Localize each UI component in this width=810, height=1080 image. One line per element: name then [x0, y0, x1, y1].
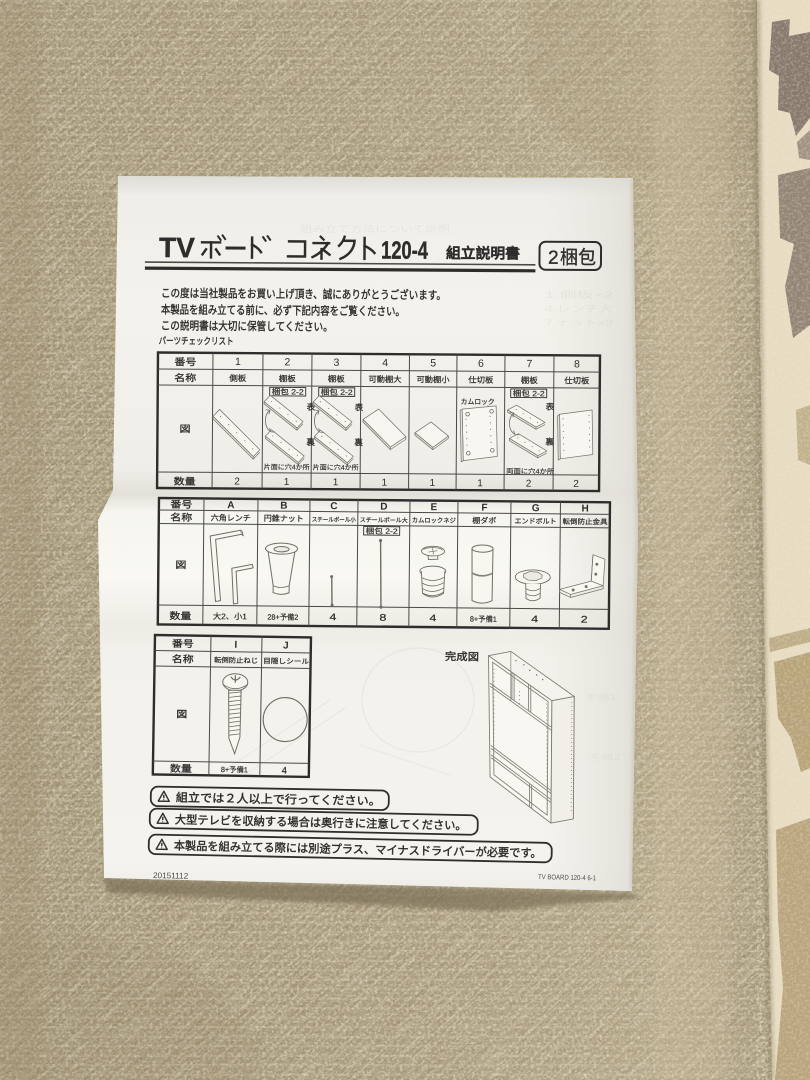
svg-text:棚板: 棚板 — [328, 374, 345, 384]
svg-text:5: 5 — [430, 357, 436, 369]
svg-text:4: 4 — [382, 357, 388, 369]
svg-text:1: 1 — [382, 478, 388, 489]
svg-text:1: 1 — [333, 477, 339, 488]
svg-text:C: C — [330, 501, 337, 512]
svg-text:棚板: 棚板 — [521, 375, 538, 385]
svg-text:梱包 2-2: 梱包 2-2 — [366, 525, 398, 535]
svg-text:棚板: 棚板 — [279, 373, 296, 383]
svg-text:パーツチェックリスト: パーツチェックリスト — [159, 336, 234, 348]
svg-text:番号: 番号 — [170, 499, 192, 511]
svg-text:I: I — [234, 640, 237, 651]
svg-text:図: 図 — [175, 560, 186, 571]
svg-text:2: 2 — [234, 477, 240, 488]
svg-text:G: G — [532, 503, 540, 514]
svg-text:6: 6 — [478, 358, 484, 370]
svg-text:2: 2 — [581, 615, 588, 626]
svg-text:片面に穴4か所: 片面に穴4か所 — [264, 462, 310, 471]
svg-text:1.側板×2: 1.側板×2 — [545, 289, 613, 300]
svg-text:B: B — [280, 501, 287, 512]
svg-text:4: 4 — [531, 614, 538, 625]
svg-text:転倒防止金具: 転倒防止金具 — [563, 517, 608, 526]
svg-text:8+予備1: 8+予備1 — [470, 613, 497, 623]
svg-text:数量: 数量 — [169, 610, 192, 622]
svg-text:片面に穴4か所: 片面に穴4か所 — [313, 463, 359, 472]
svg-text:数量: 数量 — [170, 763, 193, 775]
svg-text:4: 4 — [429, 613, 436, 624]
svg-text:7: 7 — [526, 358, 532, 370]
svg-text:1: 1 — [430, 478, 436, 489]
svg-text:D: D — [380, 502, 387, 513]
svg-text:120-4: 120-4 — [381, 237, 428, 265]
svg-text:8: 8 — [574, 358, 580, 370]
svg-text:仕切板: 仕切板 — [468, 375, 493, 385]
svg-text:可動棚小: 可動棚小 — [417, 374, 450, 384]
svg-text:2: 2 — [548, 248, 559, 269]
svg-text:2: 2 — [526, 479, 532, 490]
svg-text:1: 1 — [235, 356, 241, 368]
svg-text:名称: 名称 — [170, 512, 193, 524]
svg-text:図: 図 — [176, 709, 187, 720]
svg-text:J: J — [283, 641, 289, 652]
svg-text:名称: 名称 — [174, 372, 197, 384]
svg-text:8: 8 — [379, 613, 386, 624]
svg-text:4.レンチ大: 4.レンチ大 — [545, 303, 613, 314]
svg-text:TV: TV — [159, 232, 195, 263]
svg-text:28+予備2: 28+予備2 — [267, 612, 298, 622]
svg-text:3: 3 — [333, 357, 339, 369]
svg-text:4: 4 — [282, 766, 287, 777]
svg-text:手順2: 手順2 — [590, 752, 621, 762]
svg-text:表: 表 — [546, 402, 555, 412]
svg-text:側板: 側板 — [229, 373, 246, 383]
svg-text:2: 2 — [284, 356, 290, 368]
svg-text:六角レンチ: 六角レンチ — [211, 512, 251, 522]
svg-text:図: 図 — [179, 424, 190, 435]
svg-text:番号: 番号 — [172, 638, 194, 650]
svg-text:E: E — [431, 502, 438, 513]
svg-text:1: 1 — [477, 478, 483, 489]
svg-text:エンドボルト: エンドボルト — [515, 517, 557, 525]
svg-text:20151112: 20151112 — [153, 871, 189, 881]
svg-text:梱包 2-2: 梱包 2-2 — [272, 386, 304, 396]
svg-text:8+予備1: 8+予備1 — [221, 764, 248, 774]
svg-text:F: F — [481, 503, 487, 514]
svg-text:表: 表 — [355, 402, 364, 412]
svg-text:数量: 数量 — [174, 476, 197, 488]
svg-text:手順1: 手順1 — [586, 692, 617, 702]
svg-text:梱包: 梱包 — [560, 247, 596, 269]
svg-text:2: 2 — [573, 479, 579, 490]
svg-text:両面に穴4か所: 両面に穴4か所 — [506, 466, 554, 475]
svg-text:仕切板: 仕切板 — [564, 375, 589, 385]
svg-text:裏: 裏 — [545, 437, 554, 447]
svg-text:円錐ナット: 円錐ナット — [264, 513, 304, 523]
svg-text:この説明書は大切に保管してください。: この説明書は大切に保管してください。 — [161, 318, 333, 333]
svg-text:大2、小1: 大2、小1 — [213, 611, 248, 621]
svg-text:7.ナット×8: 7.ナット×8 — [545, 318, 613, 328]
svg-text:H: H — [581, 504, 588, 515]
svg-text:1: 1 — [284, 477, 290, 488]
svg-text:裏: 裏 — [354, 437, 363, 447]
svg-text:可動棚大: 可動棚大 — [369, 374, 402, 384]
svg-text:4: 4 — [329, 612, 336, 623]
svg-text:棚ダボ: 棚ダボ — [472, 515, 497, 525]
svg-text:カムロック: カムロック — [461, 397, 495, 406]
svg-text:梱包 2-2: 梱包 2-2 — [321, 387, 353, 397]
svg-text:A: A — [227, 500, 234, 511]
svg-text:組み立て方法について説明: 組み立て方法について説明 — [300, 223, 450, 234]
svg-text:TV BOARD 120-4 6-1: TV BOARD 120-4 6-1 — [538, 874, 596, 882]
svg-text:カムロックネジ: カムロックネジ — [412, 516, 457, 524]
svg-text:名称: 名称 — [172, 653, 195, 665]
svg-text:番号: 番号 — [174, 356, 196, 368]
svg-text:梱包 2-2: 梱包 2-2 — [513, 388, 545, 398]
svg-text:組立説明書: 組立説明書 — [446, 244, 520, 263]
